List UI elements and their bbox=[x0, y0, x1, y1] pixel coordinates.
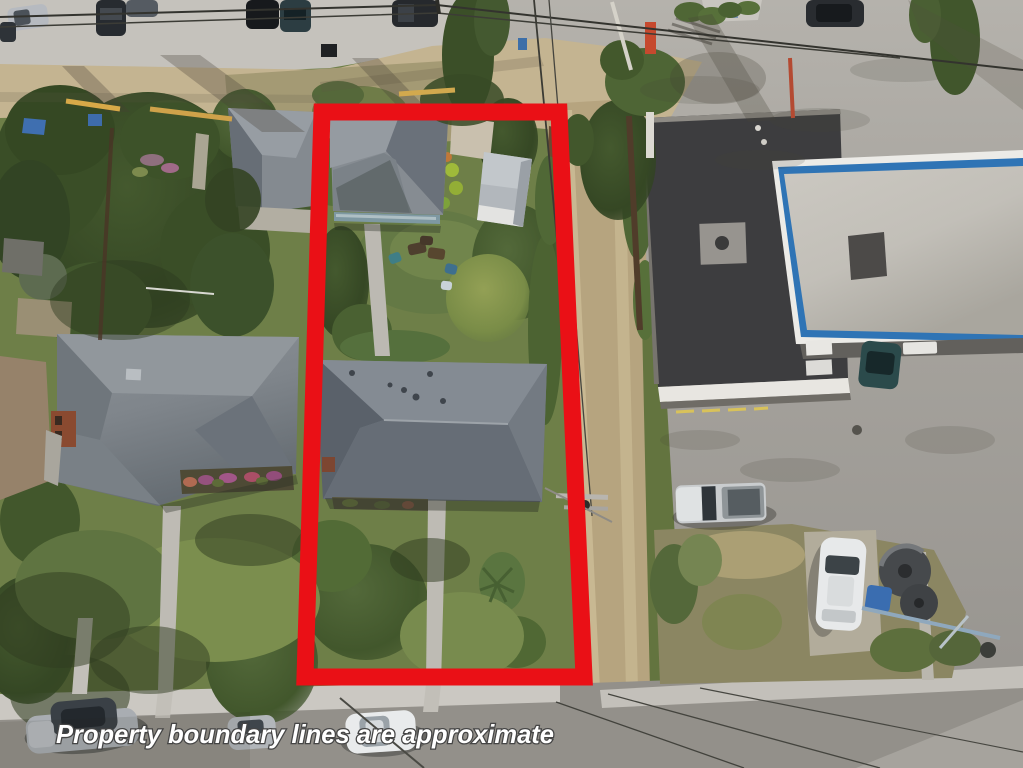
svg-text:Property boundary lines are ap: Property boundary lines are approximate bbox=[56, 719, 554, 749]
